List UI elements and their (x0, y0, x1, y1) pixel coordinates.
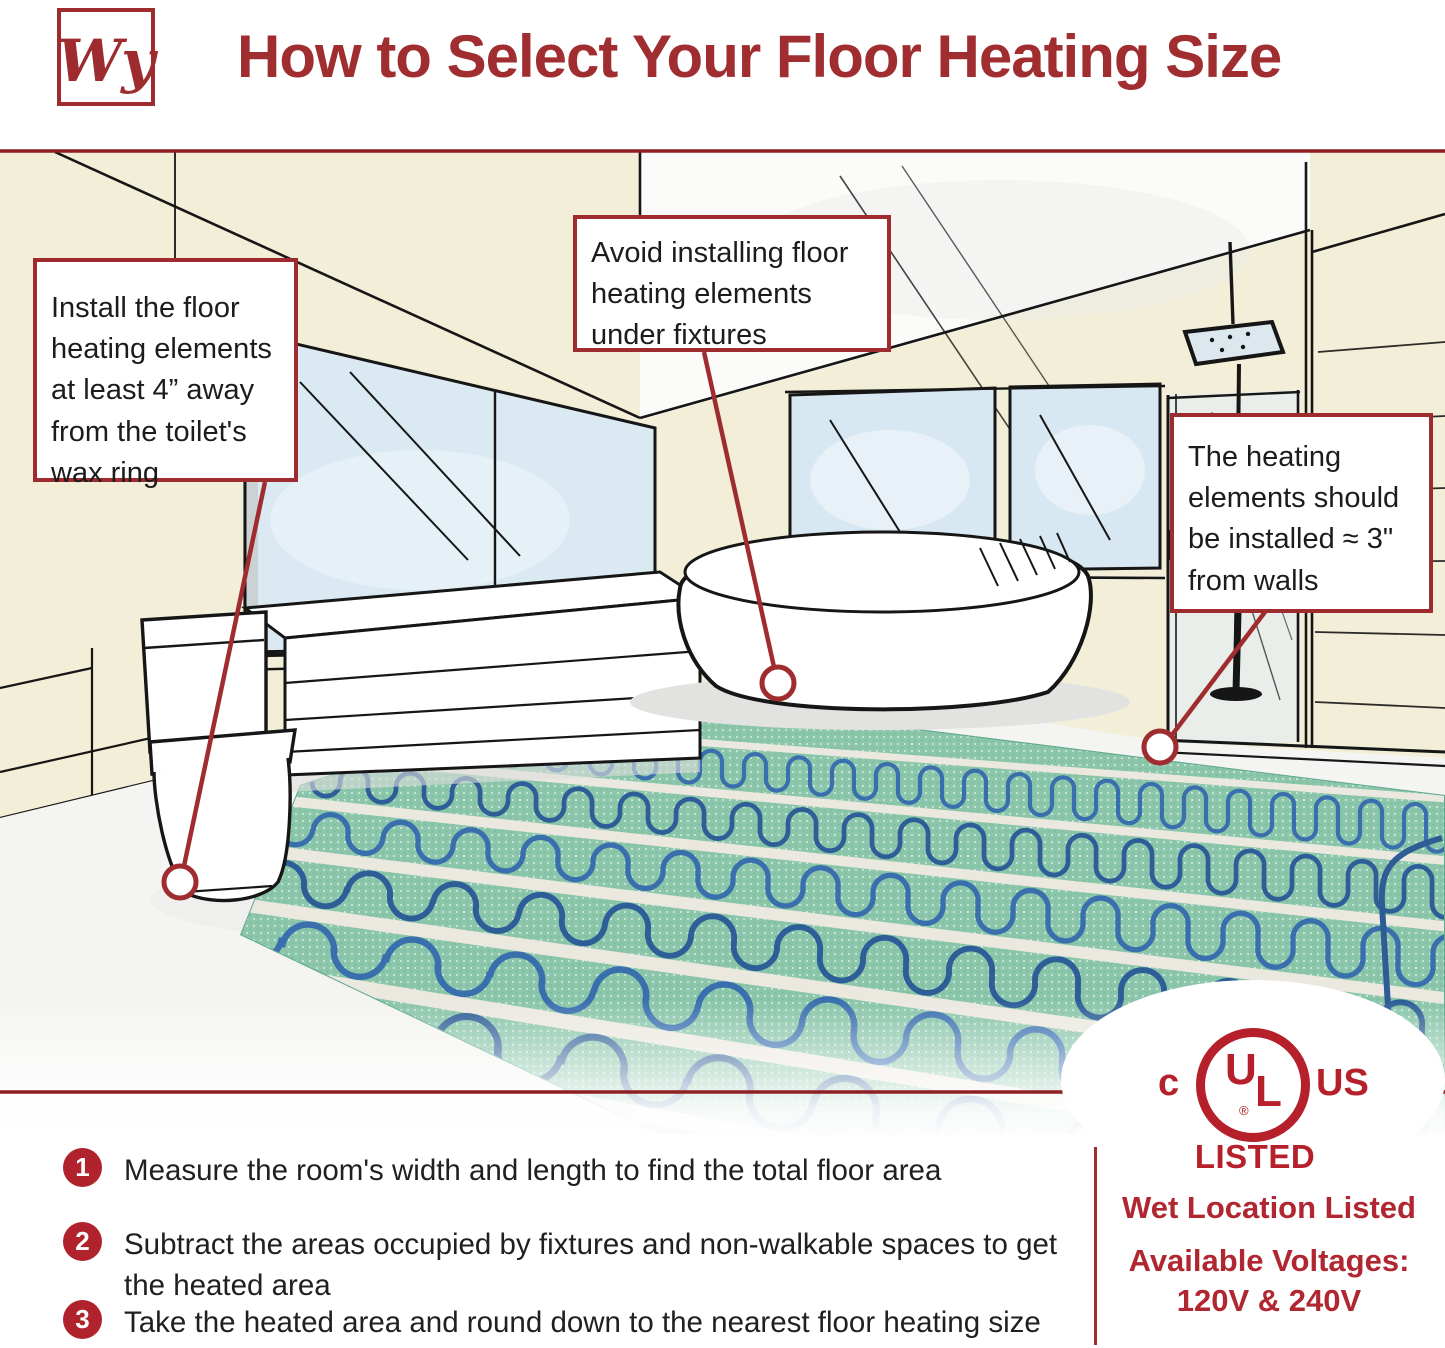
brand-logo: Wy (57, 8, 155, 106)
brand-monogram: Wy (57, 32, 155, 90)
ul-c-label: c (1158, 1062, 1179, 1105)
registered-symbol: ® (1239, 1103, 1249, 1118)
voltages-value: 120V & 240V (1104, 1283, 1434, 1319)
ul-u-letter: U (1225, 1045, 1257, 1095)
marker-toilet (164, 866, 196, 898)
step-number-badge: 2 (63, 1222, 102, 1261)
bathtub (630, 532, 1130, 730)
step-row-2: 2 Subtract the areas occupied by fixture… (63, 1222, 1089, 1306)
step-number-badge: 1 (63, 1148, 102, 1187)
callout-fixtures-text: Avoid installing floor heating elements … (591, 237, 848, 351)
step-text: Take the heated area and round down to t… (124, 1300, 1041, 1344)
voltages-label: Available Voltages: (1104, 1243, 1434, 1279)
ul-us-label: US (1316, 1062, 1369, 1105)
marker-tub (762, 667, 794, 699)
callout-walls: The heating elements should be installed… (1170, 413, 1433, 613)
callout-toilet-text: Install the floor heating elements at le… (51, 292, 272, 489)
ul-listed-label: LISTED (1130, 1138, 1380, 1176)
callout-fixtures: Avoid installing floor heating elements … (573, 215, 891, 352)
step-number-badge: 3 (63, 1300, 102, 1339)
infographic-page: Wy How to Select Your Floor Heating Size… (0, 0, 1445, 1348)
certification-text-block: Wet Location Listed Available Voltages: … (1104, 1190, 1434, 1319)
ul-certification-mark: c U L ® US LISTED (1130, 1018, 1380, 1178)
bench (245, 572, 700, 792)
callout-walls-text: The heating elements should be installed… (1188, 441, 1399, 597)
wet-location-label: Wet Location Listed (1104, 1190, 1434, 1226)
step-row-3: 3 Take the heated area and round down to… (63, 1300, 1041, 1344)
step-row-1: 1 Measure the room's width and length to… (63, 1148, 941, 1192)
ul-circle-icon: U L ® (1196, 1028, 1310, 1142)
page-title: How to Select Your Floor Heating Size (237, 22, 1281, 91)
callout-toilet: Install the floor heating elements at le… (33, 258, 298, 482)
vertical-divider (1094, 1147, 1097, 1345)
step-text: Subtract the areas occupied by fixtures … (124, 1222, 1089, 1306)
ul-l-letter: L (1255, 1067, 1282, 1117)
step-text: Measure the room's width and length to f… (124, 1148, 941, 1192)
marker-wall (1144, 731, 1176, 763)
